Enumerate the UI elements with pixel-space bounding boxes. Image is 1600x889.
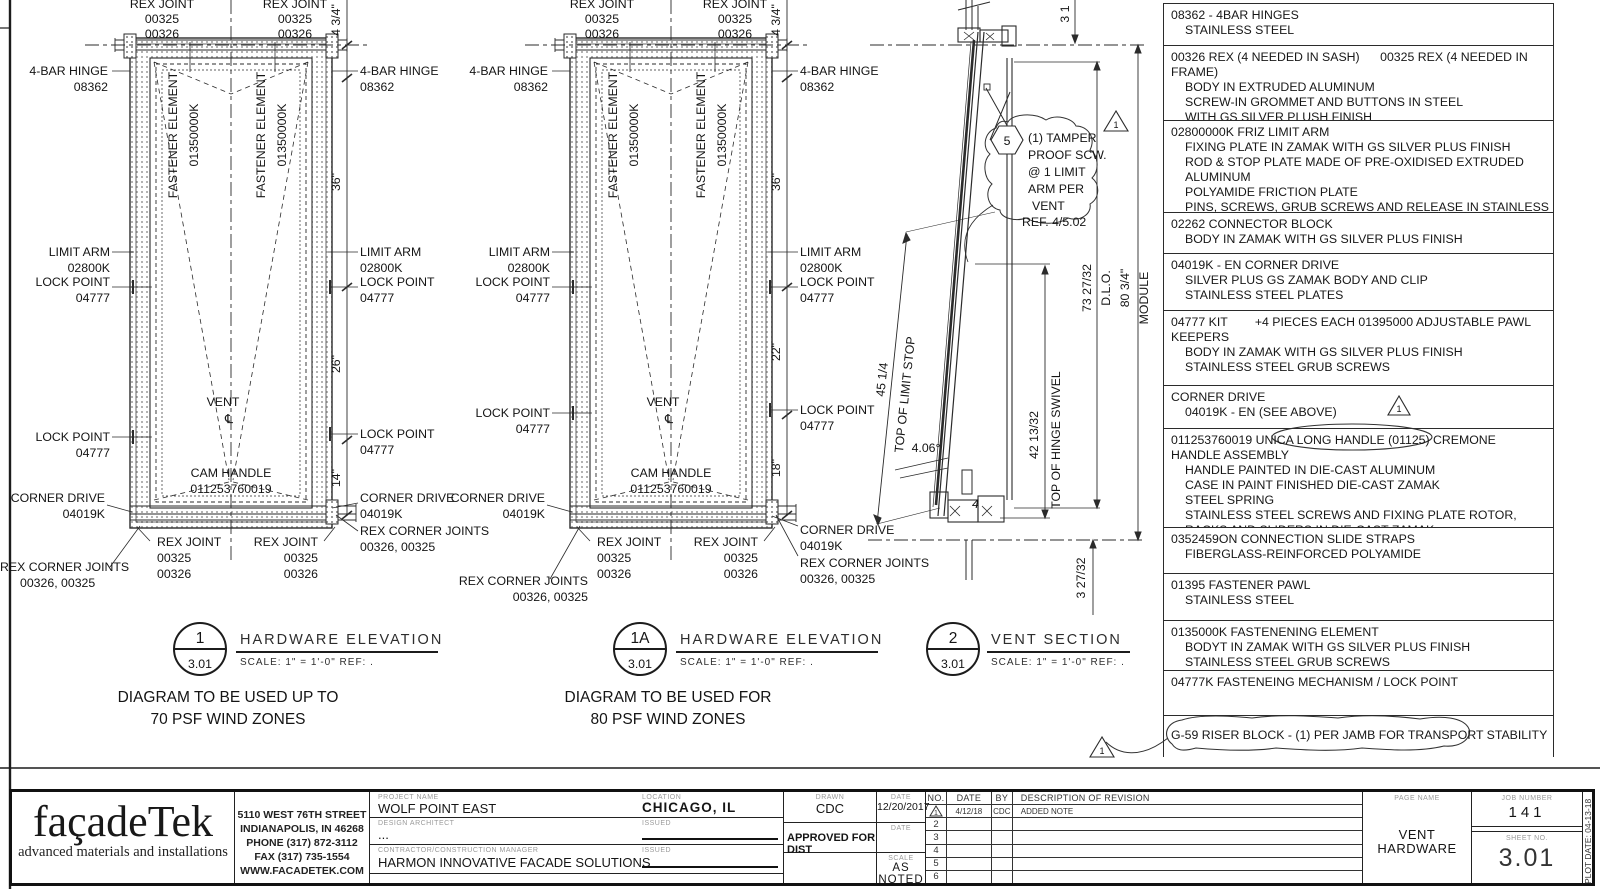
label-code: 011253760019 [630, 482, 711, 496]
parts-row: 08362 - 4BAR HINGES STAINLESS STEEL [1164, 4, 1553, 46]
label-lock-point: LOCK POINT [800, 403, 875, 417]
note-line: VENT [1032, 199, 1065, 213]
label-code: 00326 [284, 567, 318, 581]
revision-row: 3 [926, 831, 1362, 844]
label-corner-drive: CORNER DRIVE [11, 491, 105, 505]
parts-row: 011253760019 UNICA LONG HANDLE (01125) C… [1164, 429, 1553, 528]
sheet-number-cell: JOB NUMBER 141 SHEET NO. 3.01 [1472, 792, 1583, 883]
detail-number: 4 [972, 497, 979, 511]
part-line: 04019K - EN (SEE ABOVE) [1171, 405, 1549, 420]
dim: 42 13/32 [1027, 411, 1041, 459]
label-fastener: FASTENER ELEMENT [694, 71, 708, 198]
revision-triangle-number: 1 [1099, 746, 1104, 756]
label-code: 00326, 00325 [513, 590, 588, 604]
centerline-symbol: ℄ [224, 412, 233, 426]
label-hinge: 4-BAR HINGE [29, 64, 108, 78]
dim-label: MODULE [1137, 272, 1151, 325]
dim: 3 27/32 [1074, 557, 1088, 598]
divider [1472, 826, 1582, 832]
label-code: 00325 [278, 12, 312, 26]
label-code: 01350000K [627, 103, 641, 167]
part-line: BODY IN ZAMAK WITH GS SILVER PLUS FINISH [1171, 232, 1549, 247]
label-corner-drive: CORNER DRIVE [800, 523, 894, 537]
part-line: 01395 FASTENER PAWL [1171, 578, 1549, 593]
rev-no: 6 [926, 871, 947, 883]
label-rex-joint: REX JOINT [694, 535, 759, 549]
view-title: HARDWARE ELEVATION [680, 632, 883, 648]
plot-date: PLOT DATE: 04-13-18 [1583, 796, 1593, 884]
parts-row: 04777K FASTENEING MECHANISM / LOCK POINT [1164, 671, 1553, 716]
label-lock-point: LOCK POINT [476, 275, 551, 289]
address-line: FAX (317) 735-1554 [235, 850, 369, 864]
part-line: FIBERGLASS-REINFORCED POLYAMIDE [1171, 547, 1549, 562]
callout-number: 1 [196, 630, 205, 647]
dim: 3 1 [1058, 5, 1072, 22]
vent-section-geometry [868, 0, 1145, 615]
label-fastener: FASTENER ELEMENT [254, 71, 268, 198]
label-hinge: 4-BAR HINGE [800, 64, 879, 78]
address-cell: 5110 WEST 76TH STREET INDIANAPOLIS, IN 4… [235, 792, 370, 883]
dim-label: TOP OF LIMIT STOP [892, 336, 918, 453]
label-code: 011253760019 [190, 482, 271, 496]
label-code: 00325 [585, 12, 619, 26]
label-lock-point: LOCK POINT [800, 275, 875, 289]
part-line: STAINLESS STEEL SCREWS AND FIXING PLATE … [1171, 508, 1549, 523]
label-rex-joint: REX JOINT [157, 535, 222, 549]
dim: 26" [329, 355, 343, 373]
dim: 45 1/4 [873, 362, 891, 398]
label-code: 04777 [516, 422, 550, 436]
label-lock-point: LOCK POINT [36, 275, 111, 289]
label-rex-joint: REX JOINT [597, 535, 662, 549]
label-code: 01350000K [187, 103, 201, 167]
note-line: @ 1 LIMIT [1028, 165, 1086, 179]
part-line: 08362 - 4BAR HINGES [1171, 8, 1549, 23]
label-limit-arm: LIMIT ARM [800, 245, 861, 259]
parts-list: 08362 - 4BAR HINGES STAINLESS STEEL 0032… [1163, 3, 1554, 757]
dim-label: D.L.O. [1099, 270, 1113, 306]
label-code: 02800K [68, 261, 111, 275]
diagram-note: DIAGRAM TO BE USED UP TO [118, 689, 339, 706]
centerline-symbol: ℄ [664, 412, 673, 426]
label-code: 04019K [360, 507, 403, 521]
label-fastener: FASTENER ELEMENT [166, 71, 180, 198]
project-name-label: PROJECT NAME [378, 794, 439, 801]
vent-section: 5 (1) TAMPER PROOF SCW. @ 1 LIMIT ARM PE… [868, 0, 1151, 675]
part-line: 02262 CONNECTOR BLOCK [1171, 217, 1549, 232]
view-scale: SCALE: 1" = 1'-0" REF: . [991, 657, 1125, 668]
label-rex-corner: REX CORNER JOINTS [0, 560, 129, 574]
label-code: 08362 [360, 80, 394, 94]
svg-text:1: 1 [934, 810, 938, 817]
callout-1a: 1A 3.01 HARDWARE ELEVATION SCALE: 1" = 1… [565, 623, 884, 728]
callout-2: 2 3.01 VENT SECTION SCALE: 1" = 1'-0" RE… [927, 623, 1130, 675]
rev-by: CDC [992, 805, 1013, 817]
label-code: 04777 [76, 291, 110, 305]
part-line: BODY IN ZAMAK WITH GS SILVER PLUS FINISH [1171, 345, 1549, 360]
label-cam-handle: CAM HANDLE [191, 466, 272, 480]
label-cam-handle: CAM HANDLE [631, 466, 712, 480]
label-code: 02800K [360, 261, 403, 275]
parts-row: 04777 KIT +4 PIECES EACH 01395000 ADJUST… [1164, 311, 1553, 386]
label-code: 04019K [503, 507, 546, 521]
revision-triangle-number: 1 [1113, 120, 1118, 130]
part-line: BODYT IN ZAMAK WITH GS SILVER PLUS FINIS… [1171, 640, 1549, 655]
parts-row: CORNER DRIVE 04019K - EN (SEE ABOVE) [1164, 386, 1553, 429]
part-line: STAINLESS STEEL PLATES [1171, 288, 1549, 303]
label-code: 02800K [508, 261, 551, 275]
issued-label: ISSUED [642, 820, 671, 827]
label-code: 04777 [360, 291, 394, 305]
scale-label: SCALE [877, 855, 925, 862]
part-line: BODY IN EXTRUDED ALUMINUM [1171, 80, 1549, 95]
label-rex-corner: REX CORNER JOINTS [360, 524, 489, 538]
label-lock-point: LOCK POINT [360, 275, 435, 289]
part-line: 04019K - EN CORNER DRIVE [1171, 258, 1549, 273]
revision-row: 2 [926, 818, 1362, 831]
parts-row: G-59 RISER BLOCK - (1) PER JAMB FOR TRAN… [1164, 716, 1553, 758]
view-title: VENT SECTION [991, 632, 1122, 648]
label-code: 04777 [516, 291, 550, 305]
rev-no: 5 [926, 858, 947, 870]
part-line: SILVER PLUS GS ZAMAK BODY AND CLIP [1171, 273, 1549, 288]
date-cell: DATE 12/20/2017 DATE SCALE AS NOTED [877, 792, 926, 883]
parts-row: 00326 REX (4 NEEDED IN SASH) 00325 REX (… [1164, 46, 1553, 121]
part-line: STAINLESS STEEL GRUB SCREWS [1171, 655, 1549, 670]
label-limit-arm: LIMIT ARM [489, 245, 550, 259]
dim: 4 3/4" [769, 4, 783, 36]
label-code: 04777 [360, 443, 394, 457]
label-fastener: FASTENER ELEMENT [606, 71, 620, 198]
sheet-title-label: PAGE NAME [1363, 795, 1471, 802]
drawing-sheet: REX JOINT 00325 00326 REX JOINT 00325 00… [0, 0, 1600, 889]
callout-sheet: 3.01 [941, 657, 965, 671]
label-corner-drive: CORNER DRIVE [451, 491, 545, 505]
callout-sheet: 3.01 [628, 657, 652, 671]
label-code: 00326 [278, 27, 312, 41]
dim: 22" [769, 343, 783, 361]
label-code: 00325 [718, 12, 752, 26]
label-code: 00325 [145, 12, 179, 26]
label-code: 00325 [724, 551, 758, 565]
part-line: 04777K FASTENEING MECHANISM / LOCK POINT [1171, 675, 1549, 690]
hex-badge-number: 5 [1004, 134, 1011, 148]
company-tagline: advanced materials and installations [12, 844, 234, 861]
rev-no: 4 [926, 845, 947, 857]
label-lock-point: LOCK POINT [360, 427, 435, 441]
rev-col-by: BY [992, 792, 1013, 804]
label-code: 04777 [76, 446, 110, 460]
label-code: 00325 [284, 551, 318, 565]
contractor-label: CONTRACTOR/CONSTRUCTION MANAGER [378, 847, 538, 854]
address-line: INDIANAPOLIS, IN 46268 [235, 822, 369, 836]
note-line: PROOF SCW. [1028, 148, 1107, 162]
dim: 18" [769, 459, 783, 477]
part-line: 011253760019 UNICA LONG HANDLE (01125) C… [1171, 433, 1549, 463]
label-code: 00326 [597, 567, 631, 581]
parts-row: 01395 FASTENER PAWL STAINLESS STEEL [1164, 574, 1553, 621]
label-code: 00325 [157, 551, 191, 565]
dim: 14" [329, 469, 343, 487]
label-code: 08362 [74, 80, 108, 94]
label-code: 01350000K [715, 103, 729, 167]
note-line: REF. 4/5.02 [1022, 215, 1086, 229]
date-value: 12/20/2017 [877, 801, 925, 813]
label-limit-arm: LIMIT ARM [360, 245, 421, 259]
label-code: 00326 [724, 567, 758, 581]
sheet-number: 3.01 [1472, 844, 1582, 873]
rev-col-desc: DESCRIPTION OF REVISION [1013, 792, 1362, 804]
callout-sheet: 3.01 [188, 657, 212, 671]
job-number: 141 [1472, 804, 1582, 821]
part-line: G-59 RISER BLOCK - (1) PER JAMB FOR TRAN… [1171, 728, 1549, 743]
elevation-1: REX JOINT 00325 00326 REX JOINT 00325 00… [0, 0, 489, 728]
view-scale: SCALE: 1" = 1'-0" REF: . [240, 657, 374, 668]
part-line: POLYAMIDE FRICTION PLATE [1171, 185, 1549, 200]
project-name: WOLF POINT EAST [378, 801, 496, 816]
part-line: SCREW-IN GROMMET AND BUTTONS IN STEEL [1171, 95, 1549, 110]
approved-for-dist: APPROVED FOR DIST [787, 832, 876, 856]
label-code: 04777 [800, 291, 834, 305]
address-line: 5110 WEST 76TH STREET [235, 808, 369, 822]
label-code: 00326, 00325 [800, 572, 875, 586]
part-line: 04777 KIT +4 PIECES EACH 01395000 ADJUST… [1171, 315, 1549, 330]
callout-number: 2 [949, 630, 958, 647]
sheet-no-label: SHEET NO. [1472, 835, 1582, 842]
sheet-title-cell: PAGE NAME VENT HARDWARE [1363, 792, 1472, 883]
company-logo: façadeTek [12, 800, 234, 844]
label-code: 01350000K [275, 103, 289, 167]
label-rex-corner: REX CORNER JOINTS [459, 574, 588, 588]
label-rex-joint: REX JOINT [254, 535, 319, 549]
label-rex-joint: REX JOINT [130, 0, 195, 11]
parts-row: 02262 CONNECTOR BLOCK BODY IN ZAMAK WITH… [1164, 213, 1553, 254]
parts-row: 0135000K FASTENENING ELEMENT BODYT IN ZA… [1164, 621, 1553, 671]
sheet-title-line: VENT [1363, 828, 1471, 842]
part-line: 00326 REX (4 NEEDED IN SASH) 00325 REX (… [1171, 50, 1549, 80]
part-line: HANDLE PAINTED IN DIE-CAST ALUMINUM [1171, 463, 1549, 478]
label-vent: VENT [647, 395, 680, 409]
label-code: 04019K [800, 539, 843, 553]
location: CHICAGO, IL [642, 800, 736, 815]
rev-col-date: DATE [947, 792, 992, 804]
part-line: 0135000K FASTENENING ELEMENT [1171, 625, 1549, 640]
rev-no: 2 [926, 818, 947, 830]
label-code: 00326, 00325 [360, 540, 435, 554]
label-rex-joint: REX JOINT [263, 0, 328, 11]
part-line: CORNER DRIVE [1171, 390, 1549, 405]
architect: ... [378, 827, 389, 842]
issued-underline [642, 838, 778, 840]
diagram-note: 70 PSF WIND ZONES [150, 711, 305, 728]
dim-angle: 4.06° [912, 441, 941, 455]
parts-row: 04019K - EN CORNER DRIVE SILVER PLUS GS … [1164, 254, 1553, 311]
rev-date: 4/12/18 [947, 805, 992, 817]
label-code: 04777 [800, 419, 834, 433]
label-rex-joint: REX JOINT [570, 0, 635, 11]
part-line: WITH GS SILVER PLUSH FINISH [1171, 110, 1549, 121]
title-block: façadeTek advanced materials and install… [9, 789, 1595, 886]
drawn-label: DRAWN [784, 794, 876, 801]
revision-table: NO. DATE BY DESCRIPTION OF REVISION 1 4/… [926, 792, 1363, 883]
logo-cell: façadeTek advanced materials and install… [12, 792, 235, 883]
part-line: PINS, SCREWS, GRUB SCREWS AND RELEASE IN… [1171, 200, 1549, 213]
issued-label: ISSUED [642, 847, 671, 854]
label-code: 00326 [145, 27, 179, 41]
project-cell: PROJECT NAME WOLF POINT EAST LOCATION CH… [370, 792, 784, 883]
dim: 36" [329, 173, 343, 191]
label-rex-joint: REX JOINT [703, 0, 768, 11]
callout-1: 1 3.01 HARDWARE ELEVATION SCALE: 1" = 1'… [118, 623, 444, 728]
label-code: 08362 [514, 80, 548, 94]
part-line: STEEL SPRING [1171, 493, 1549, 508]
part-line: FIXING PLATE IN ZAMAK WITH GS SILVER PLU… [1171, 140, 1549, 155]
part-line: STAINLESS STEEL [1171, 593, 1549, 608]
label-vent: VENT [207, 395, 240, 409]
note-line: ARM PER [1028, 182, 1084, 196]
revision-triangle-icon: 1 [929, 805, 943, 817]
label-code: 00326 [157, 567, 191, 581]
parts-row: 0352459ON CONNECTION SLIDE STRAPS FIBERG… [1164, 528, 1553, 574]
label-code: 08362 [800, 80, 834, 94]
rev-desc: ADDED NOTE [1013, 805, 1362, 817]
label-code: 04019K [63, 507, 106, 521]
view-title: HARDWARE ELEVATION [240, 632, 443, 648]
elevation-1a: REX JOINT 00325 00326 REX JOINT 00325 00… [451, 0, 929, 728]
rev-col-no: NO. [926, 792, 947, 804]
drawn-cell: DRAWN CDC APPROVED FOR DIST [784, 792, 877, 883]
sheet-title-line: HARDWARE [1363, 842, 1471, 856]
elevation-1-labels: REX JOINT 00325 00326 REX JOINT 00325 00… [0, 0, 489, 590]
address-line: PHONE (317) 872-3112 [235, 836, 369, 850]
scale-value: AS NOTED [877, 862, 925, 886]
label-limit-arm: LIMIT ARM [49, 245, 110, 259]
dim-label: TOP OF HINGE SWIVEL [1049, 371, 1063, 509]
callout-number: 1A [631, 630, 651, 647]
part-line: 02800000K FRIZ LIMIT ARM [1171, 125, 1549, 140]
label-code: 00326 [585, 27, 619, 41]
label-code: 00326 [718, 27, 752, 41]
revision-row: 1 4/12/18 CDC ADDED NOTE [926, 805, 1362, 818]
label-code: 00325 [597, 551, 631, 565]
part-line: STAINLESS STEEL GRUB SCREWS [1171, 360, 1549, 375]
label-lock-point: LOCK POINT [36, 430, 111, 444]
label-hinge: 4-BAR HINGE [360, 64, 439, 78]
part-line: ROD & STOP PLATE MADE OF PRE-OXIDISED EX… [1171, 155, 1549, 185]
dim: 36" [769, 173, 783, 191]
diagram-note: DIAGRAM TO BE USED FOR [565, 689, 772, 706]
part-line: CASE IN PAINT FINISHED DIE-CAST ZAMAK [1171, 478, 1549, 493]
part-line: 0352459ON CONNECTION SLIDE STRAPS [1171, 532, 1549, 547]
revision-row: 4 [926, 845, 1362, 858]
dim: 73 27/32 [1080, 264, 1094, 312]
label-code: 02800K [800, 261, 843, 275]
drawn-by: CDC [784, 801, 876, 816]
contractor: HARMON INNOVATIVE FACADE SOLUTIONS [378, 855, 651, 870]
tamper-note: 5 (1) TAMPER PROOF SCW. @ 1 LIMIT ARM PE… [985, 111, 1128, 229]
dim: 80 3/4" [1118, 269, 1132, 308]
diagram-note: 80 PSF WIND ZONES [590, 711, 745, 728]
plot-date-strip: PLOT DATE: 04-13-18 [1583, 792, 1592, 883]
parts-row: 02800000K FRIZ LIMIT ARM FIXING PLATE IN… [1164, 121, 1553, 213]
dim: 4 3/4" [329, 4, 343, 36]
revision-row: 5 [926, 858, 1362, 871]
address-line: WWW.FACADETEK.COM [235, 864, 369, 878]
label-rex-corner: REX CORNER JOINTS [800, 556, 929, 570]
revision-row: 6 [926, 871, 1362, 883]
label-code: 00326, 00325 [20, 576, 95, 590]
date-label: DATE [877, 825, 925, 832]
architect-label: DESIGN ARCHITECT [378, 820, 454, 827]
date-label: DATE [877, 794, 925, 801]
part-line: STAINLESS STEEL [1171, 23, 1549, 38]
rev-no: 3 [926, 831, 947, 843]
label-lock-point: LOCK POINT [476, 406, 551, 420]
job-number-label: JOB NUMBER [1472, 795, 1582, 802]
label-hinge: 4-BAR HINGE [469, 64, 548, 78]
part-line: KEEPERS [1171, 330, 1549, 345]
view-scale: SCALE: 1" = 1'-0" REF: . [680, 657, 814, 668]
label-corner-drive: CORNER DRIVE [360, 491, 454, 505]
note-line: (1) TAMPER [1028, 131, 1097, 145]
issued-underline [642, 866, 778, 868]
